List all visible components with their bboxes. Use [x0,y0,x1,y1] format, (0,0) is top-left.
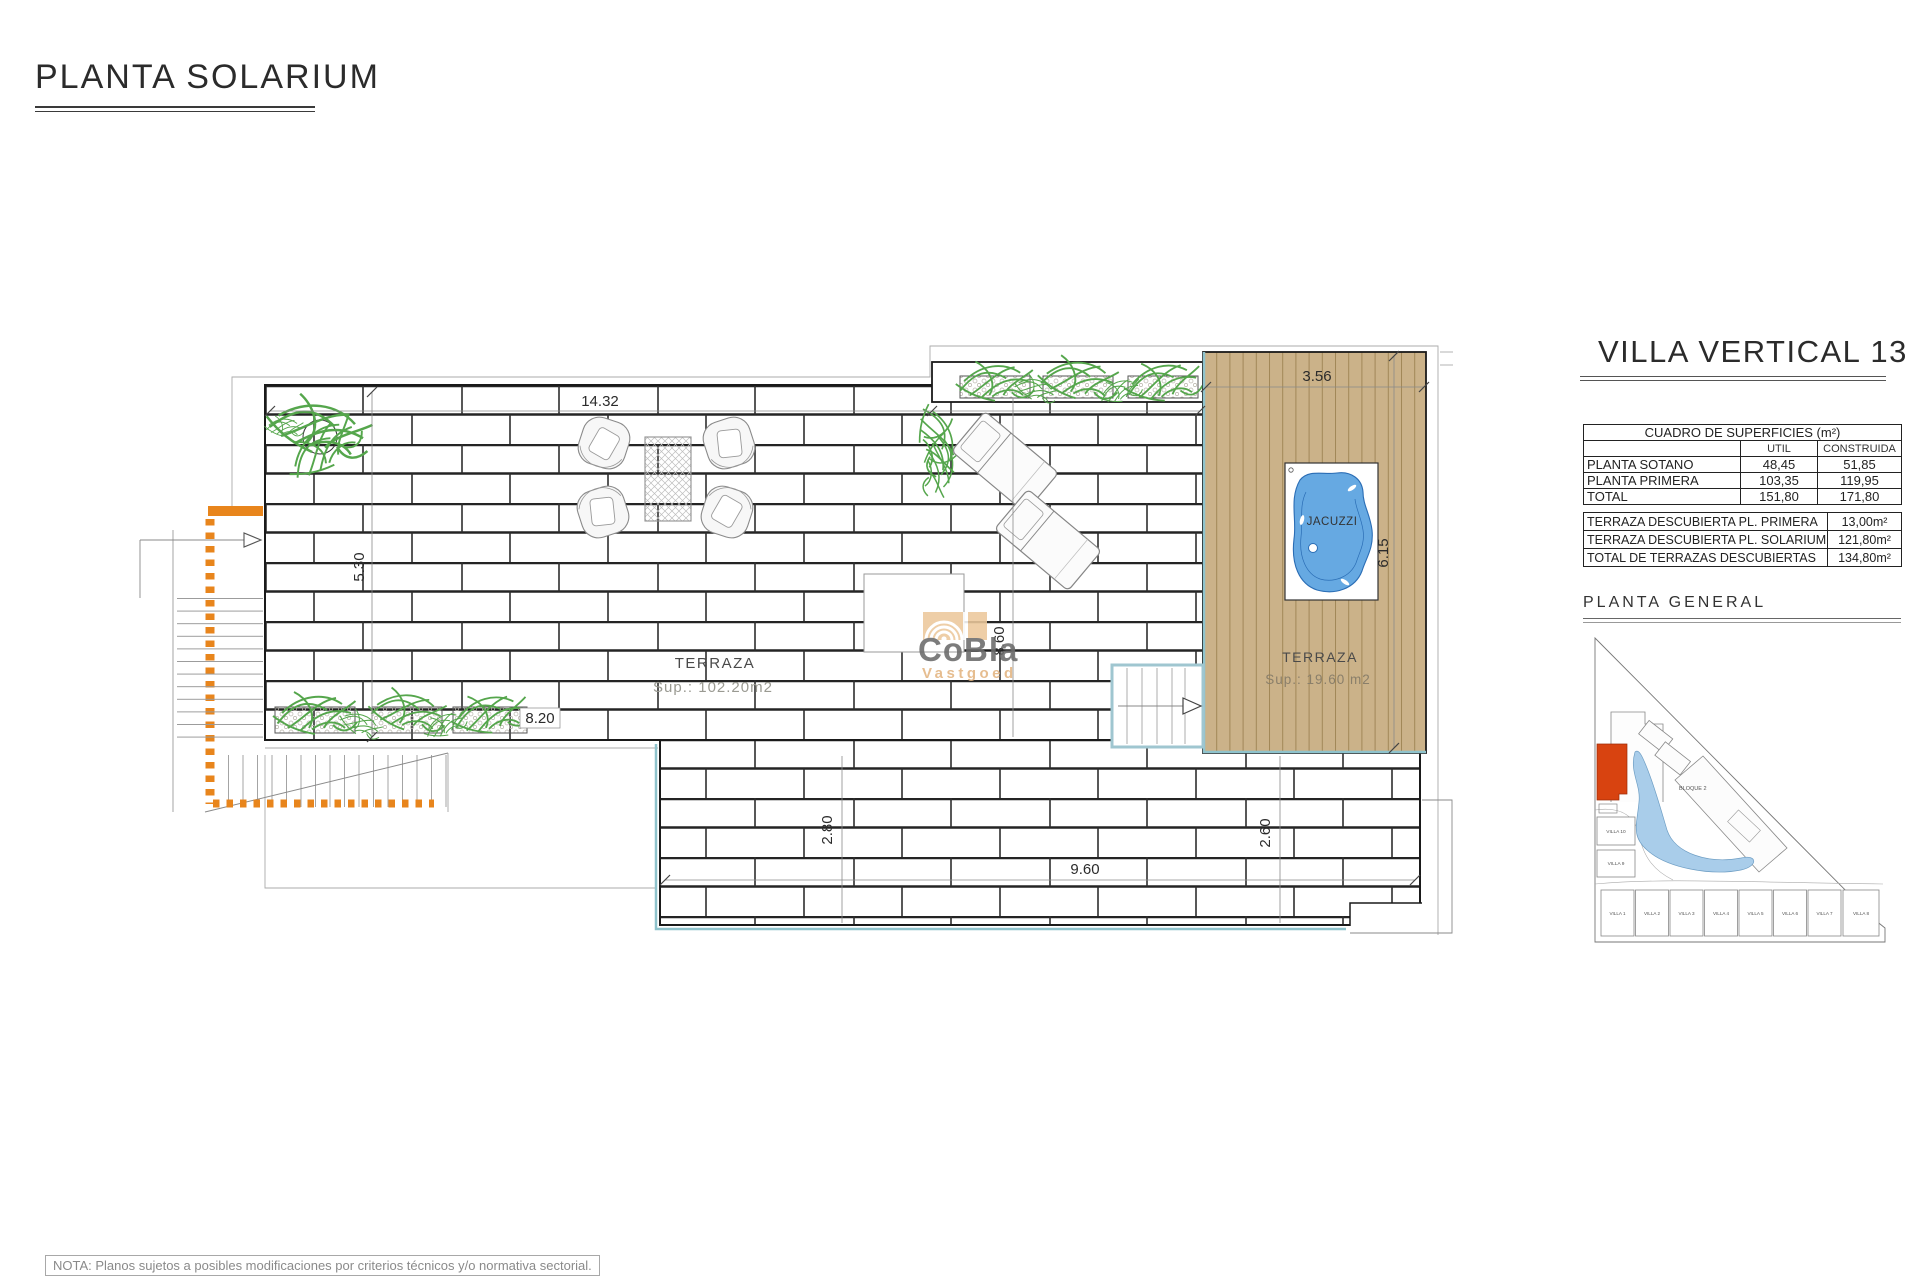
terrace-deck-label: TERRAZA [1282,649,1358,665]
villa-label: VILLA 4 [1713,911,1730,916]
planta-general-underline [1583,618,1901,623]
terraces-table: TERRAZA DESCUBIERTA PL. PRIMERA 13,00m² … [1583,512,1902,567]
jacuzzi: JACUZZI [1285,463,1378,600]
terrace-deck-area: Sup.: 19.60 m2 [1265,672,1371,687]
terrace-main-label: TERRAZA [675,655,756,672]
dim-deck-height: 6.15 [1375,538,1392,567]
villa-label: VILLA 6 [1782,911,1799,916]
jacuzzi-label: JACUZZI [1307,516,1358,528]
table-row: TOTAL DE TERRAZAS DESCUBIERTAS 134,80m² [1584,549,1902,567]
stairs-to-deck [1112,665,1203,747]
terrace-main-area: Sup.: 102.20m2 [653,679,773,696]
table-row: TERRAZA DESCUBIERTA PL. PRIMERA 13,00m² [1584,513,1902,531]
villa-label: VILLA 9 [1608,861,1625,867]
watermark-brand: CoBla [918,631,1018,668]
surfaces-table-title: CUADRO DE SUPERFICIES (m²) [1584,425,1902,441]
lower-terrace [656,740,1452,933]
table-row: TOTAL 151,80 171,80 [1584,489,1902,505]
highlighted-building [1597,744,1627,800]
dim-planter-row-width: 8.20 [525,710,554,727]
watermark-sub: Vastgoed [922,665,1017,682]
dim-terrace-width: 14.32 [581,393,619,410]
villa-label: VILLA 10 [1606,829,1626,835]
villa-label: VILLA 1 [1609,911,1626,916]
drawing-sheet: PLANTA SOLARIUM [0,0,1920,1280]
villa-label: VILLA 2 [1644,911,1661,916]
dim-terrace-height: 5.30 [351,552,368,581]
planta-general-title: PLANTA GENERAL [1583,594,1766,612]
dim-deck-width: 3.56 [1302,368,1331,385]
table-row: PLANTA PRIMERA 103,35 119,95 [1584,473,1902,489]
floor-plan-canvas: JACUZZI [0,0,1560,1280]
col-header-util: UTIL [1741,441,1818,457]
surfaces-table: CUADRO DE SUPERFICIES (m²) UTIL CONSTRUI… [1583,424,1902,505]
bloque2-label: BLOQUE 2 [1679,786,1707,792]
stair-direction-arrow [244,533,261,547]
villa-title-underline [1580,376,1886,381]
dim-lower-right-height: 2.60 [1257,818,1274,847]
dining-table [645,437,691,521]
dim-lower-left-height: 2.80 [819,815,836,844]
villa-title: VILLA VERTICAL 13 [1598,334,1908,370]
col-header-construida: CONSTRUIDA [1818,441,1902,457]
table-row: TERRAZA DESCUBIERTA PL. SOLARIUM 121,80m… [1584,531,1902,549]
note-box: NOTA: Planos sujetos a posibles modifica… [45,1255,600,1276]
table-row: PLANTA SOTANO 48,45 51,85 [1584,457,1902,473]
dim-lower-width: 9.60 [1070,861,1099,878]
villa-label: VILLA 8 [1853,911,1870,916]
villa-label: VILLA 7 [1816,911,1833,916]
site-map: BLOQUE 2 VILLA 10 VILLA 9 VILLA 1 VILLA … [1583,632,1903,957]
villa-label: VILLA 5 [1747,911,1764,916]
villa-label: VILLA 3 [1678,911,1695,916]
stair-accent-bar [208,506,263,516]
